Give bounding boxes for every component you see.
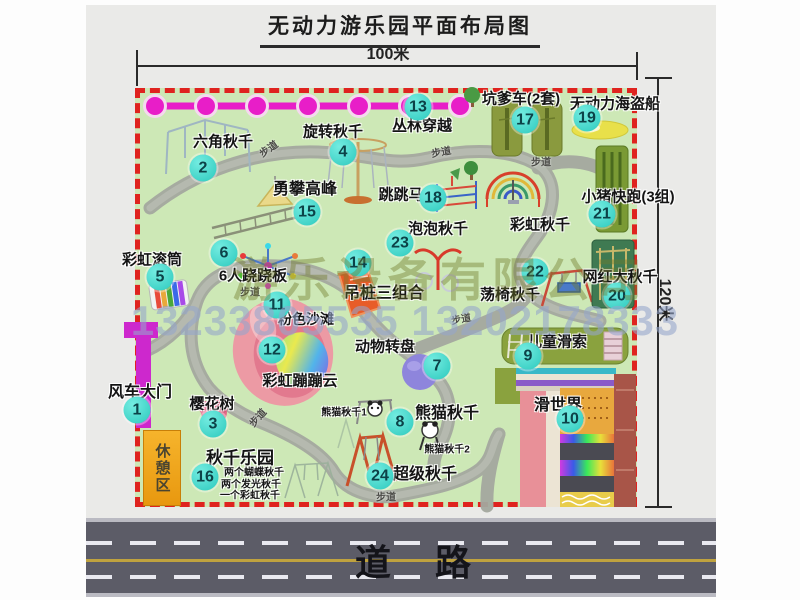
map-label-18: 跳跳马 [378,184,423,205]
annotation-label: 一个彩虹秋千 [220,487,280,502]
marker-17: 17 [512,107,539,134]
marker-18: 18 [420,185,447,212]
trail-label: 步道 [376,489,396,504]
width-dimension-label: 100米 [367,40,410,64]
marker-19: 19 [574,105,601,132]
annotation-label: 熊猫秋千2 [424,441,470,456]
marker-5: 5 [147,264,174,291]
marker-24: 24 [367,463,394,490]
map-label-15: 勇攀高峰 [273,175,337,199]
marker-15: 15 [294,199,321,226]
map-label-17: 坑爹车(2套) [482,88,560,109]
marker-23: 23 [387,230,414,257]
marker-11: 11 [264,292,291,319]
marker-14: 14 [345,250,372,277]
map-label-8: 熊猫秋千 [415,399,479,423]
annotation-label: 熊猫秋千1 [321,404,367,419]
marker-16: 16 [192,464,219,491]
marker-20: 20 [604,283,631,310]
annotation-label: 彩虹秋千 [510,214,570,235]
marker-1: 1 [124,397,151,424]
marker-4: 4 [330,139,357,166]
marker-22: 22 [522,259,549,286]
marker-10: 10 [557,406,584,433]
marker-21: 21 [589,201,616,228]
map-label-22: 荡椅秋千 [480,284,540,305]
marker-3: 3 [200,411,227,438]
map-label-12: 彩虹蹦蹦云 [262,370,337,391]
marker-9: 9 [515,343,542,370]
marker-2: 2 [190,155,217,182]
marker-8: 8 [387,409,414,436]
marker-6: 6 [211,240,238,267]
trail-label: 步道 [531,154,551,169]
map-label-6: 6人跷跷板 [219,265,287,286]
map-label-7: 动物转盘 [355,336,415,357]
map-label-4: 旋转秋千 [303,121,363,142]
marker-12: 12 [259,337,286,364]
map-label-2: 六角秋千 [193,131,253,152]
rest-area-label: 休憩区 [152,443,173,494]
marker-7: 7 [424,353,451,380]
height-dimension-label: 120米 [655,279,679,322]
map-label-24: 超级秋千 [393,460,457,484]
screenshot-stage: 无动力游乐园平面布局图 [0,0,800,600]
map-label-23: 泡泡秋千 [408,218,468,239]
trail-label: 步道 [240,284,260,299]
marker-13: 13 [405,94,432,121]
road-label: 道路 [355,534,515,586]
rest-area: 休憩区 [143,430,181,506]
map-label-14: 吊桩三组合 [344,279,424,303]
